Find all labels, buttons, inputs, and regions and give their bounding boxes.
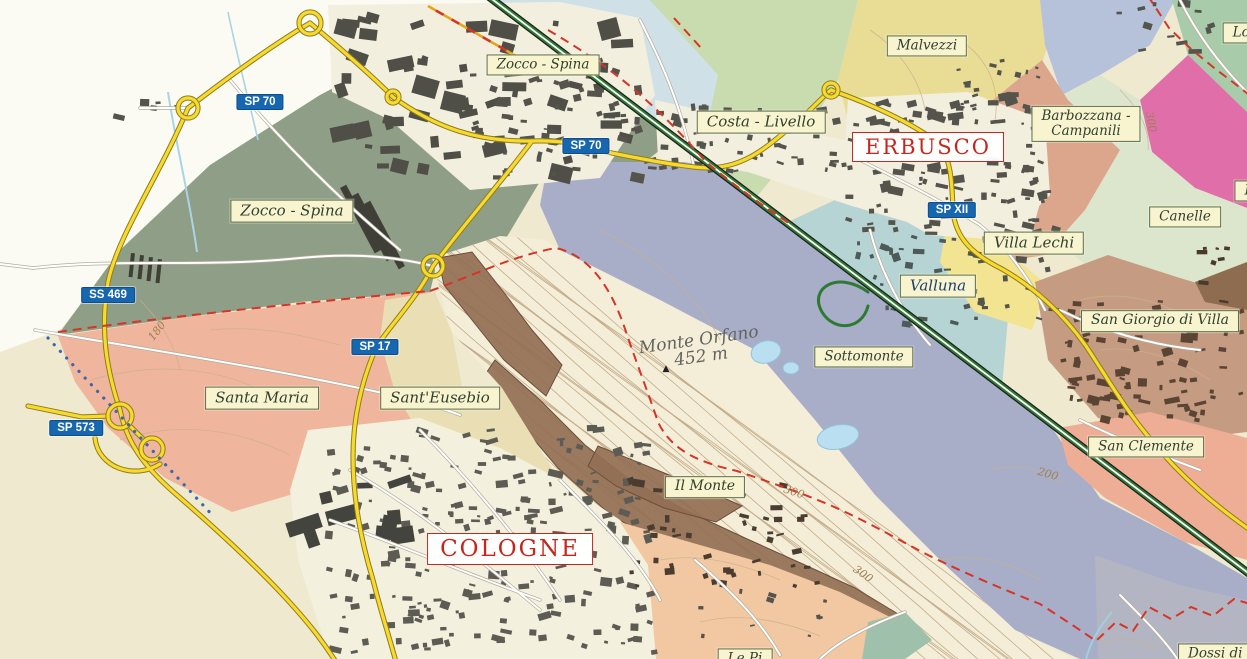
map-canvas[interactable]: Zocco - SpinaZocco - SpinaMalvezziCosta …: [0, 0, 1247, 659]
map-base-graphics: [0, 0, 1247, 659]
pond: [783, 362, 799, 374]
